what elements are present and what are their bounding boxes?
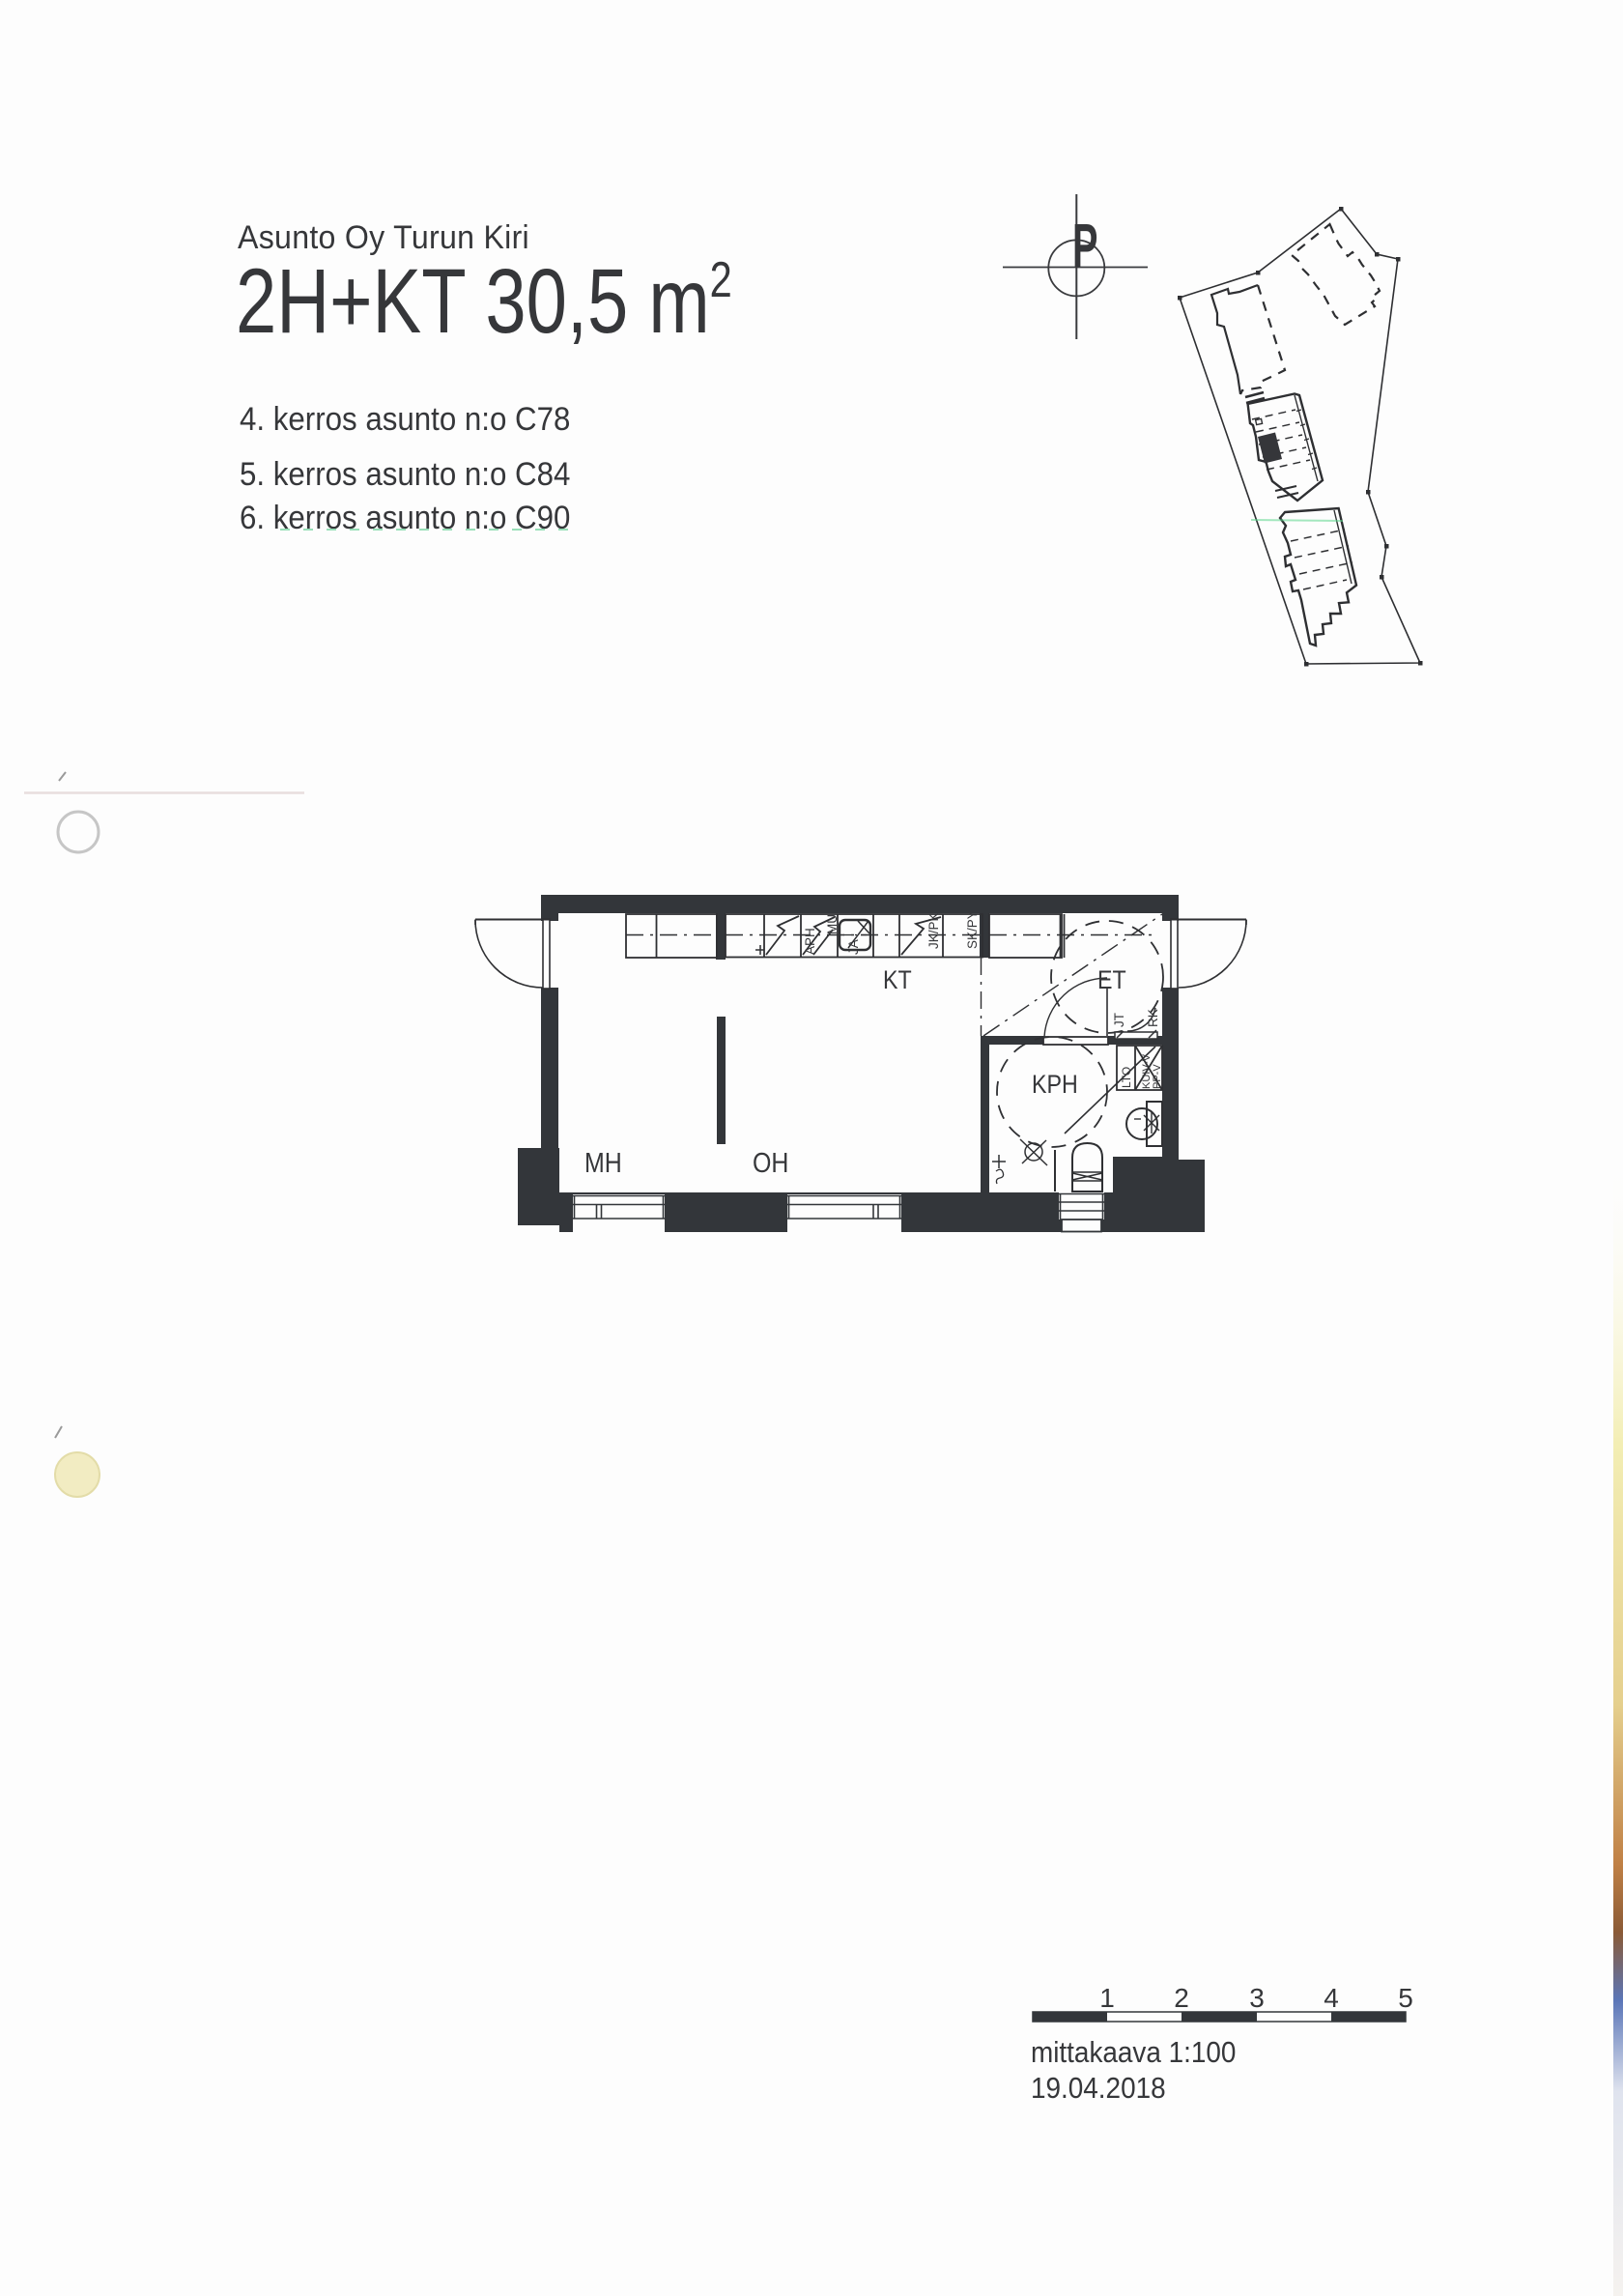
svg-text:MU: MU xyxy=(825,914,840,934)
svg-text:4. kerros asunto n:o C78: 4. kerros asunto n:o C78 xyxy=(240,400,570,438)
svg-text:3: 3 xyxy=(1249,1983,1265,2013)
svg-text:4: 4 xyxy=(1324,1983,1339,2013)
svg-text:KT: KT xyxy=(883,965,912,994)
svg-text:5: 5 xyxy=(1398,1983,1413,2013)
svg-text:APH: APH xyxy=(803,928,817,955)
svg-text:SK/PY: SK/PY xyxy=(965,910,980,949)
svg-text:KPH: KPH xyxy=(1032,1070,1078,1099)
svg-text:ET: ET xyxy=(1097,965,1126,994)
svg-text:2: 2 xyxy=(1174,1983,1189,2013)
svg-text:OH: OH xyxy=(753,1147,788,1178)
svg-text:1: 1 xyxy=(1099,1983,1115,2013)
svg-text:19.04.2018: 19.04.2018 xyxy=(1031,2072,1166,2106)
svg-text:JK/PK: JK/PK xyxy=(926,912,941,949)
svg-text:5. kerros asunto n:o C84: 5. kerros asunto n:o C84 xyxy=(240,455,570,493)
svg-text:JA: JA xyxy=(846,939,861,955)
svg-text:LTO: LTO xyxy=(1120,1067,1133,1088)
svg-text:P: P xyxy=(1072,213,1097,281)
svg-text:PP-V: PP-V xyxy=(1152,1064,1163,1089)
svg-text:MH: MH xyxy=(584,1147,622,1178)
svg-text:JT: JT xyxy=(1112,1013,1126,1027)
svg-text:RK: RK xyxy=(1146,1009,1160,1027)
svg-text:2H+KT 30,5 m2: 2H+KT 30,5 m2 xyxy=(236,250,732,353)
svg-text:mittakaava 1:100: mittakaava 1:100 xyxy=(1031,2036,1236,2070)
